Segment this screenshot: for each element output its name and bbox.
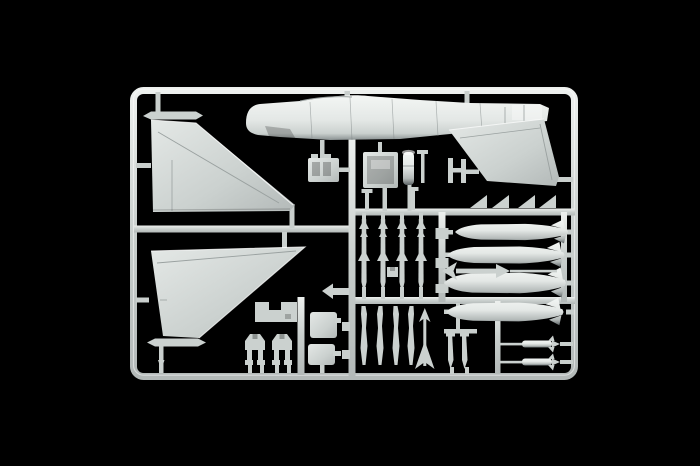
rocket-spike [510, 270, 557, 273]
tailplane-bar-upper-part [143, 112, 203, 120]
runner-stub [560, 342, 573, 346]
access-panel-part [310, 312, 337, 338]
sprue-photo [0, 0, 700, 466]
runner-vertical-central [349, 137, 356, 377]
runner-stub [465, 91, 470, 103]
cockpit-tub-part [363, 152, 398, 188]
runner-stub [362, 213, 366, 220]
runner-stub [560, 360, 573, 364]
photo-stage [0, 0, 700, 466]
runner-stub [282, 232, 287, 248]
tail-detail [512, 105, 542, 120]
runner-tab [436, 228, 449, 239]
runner-stub [419, 213, 423, 220]
tailplane-bar-lower-part [147, 339, 206, 347]
runner-tab [342, 350, 350, 359]
runner-horizontal-lower [352, 297, 575, 304]
runner-tab [436, 258, 449, 268]
panel-tab [335, 318, 341, 323]
access-panel-part [308, 344, 335, 365]
runner-stub [444, 329, 477, 334]
runner-stub [136, 298, 149, 303]
runner-stub [400, 213, 404, 220]
runner-stub [383, 186, 388, 211]
small-box-notch [390, 267, 395, 271]
ejection-seat-part [308, 154, 339, 182]
runner-tab [342, 322, 350, 331]
runner-stub [320, 140, 325, 160]
bulkhead-detail [285, 314, 291, 319]
panel-tab [333, 351, 341, 356]
runner-stub [566, 253, 574, 258]
runner-stub [156, 92, 161, 113]
runner-stub [465, 170, 479, 175]
cylinder-part [402, 150, 415, 185]
rocket-shaft [456, 269, 496, 274]
runner-stub [136, 163, 151, 168]
runner-stub [566, 310, 574, 315]
runner-stub [381, 213, 385, 220]
runner-stub [320, 365, 325, 373]
runner-stub [566, 281, 574, 286]
runner-stub [465, 367, 469, 374]
runner-vertical-left-lower [298, 297, 305, 375]
runner-horizontal-left [134, 226, 354, 233]
